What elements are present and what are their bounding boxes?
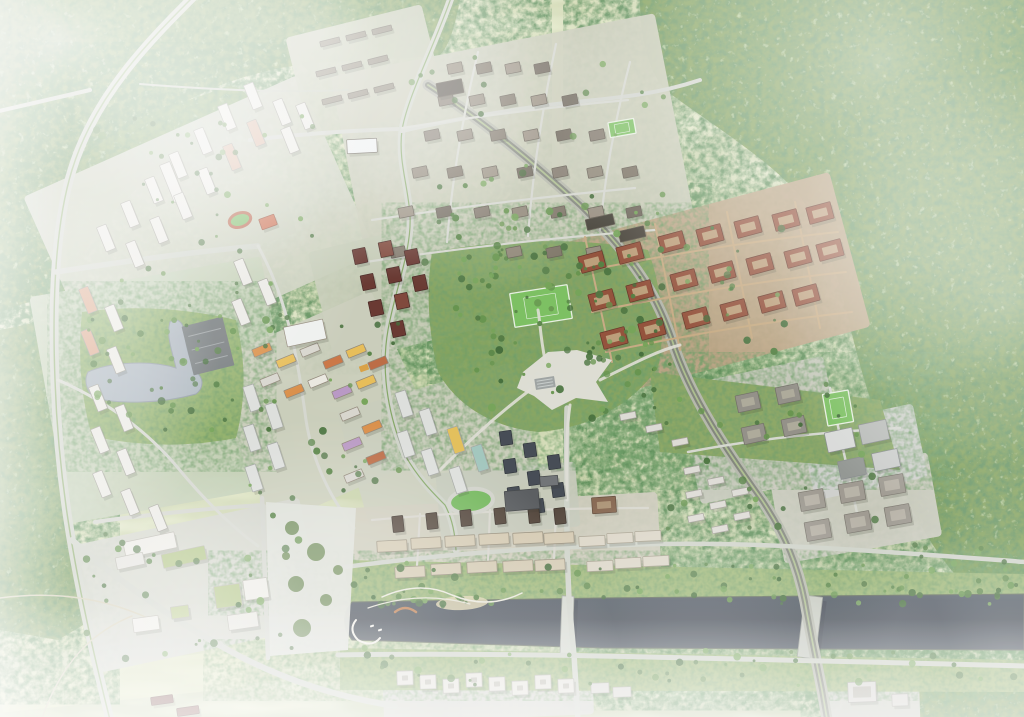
aerial-scene-canvas (0, 0, 1024, 717)
atmospheric-veil (0, 0, 1024, 717)
masterplan-aerial-render (0, 0, 1024, 717)
haze-layer (0, 0, 1024, 717)
